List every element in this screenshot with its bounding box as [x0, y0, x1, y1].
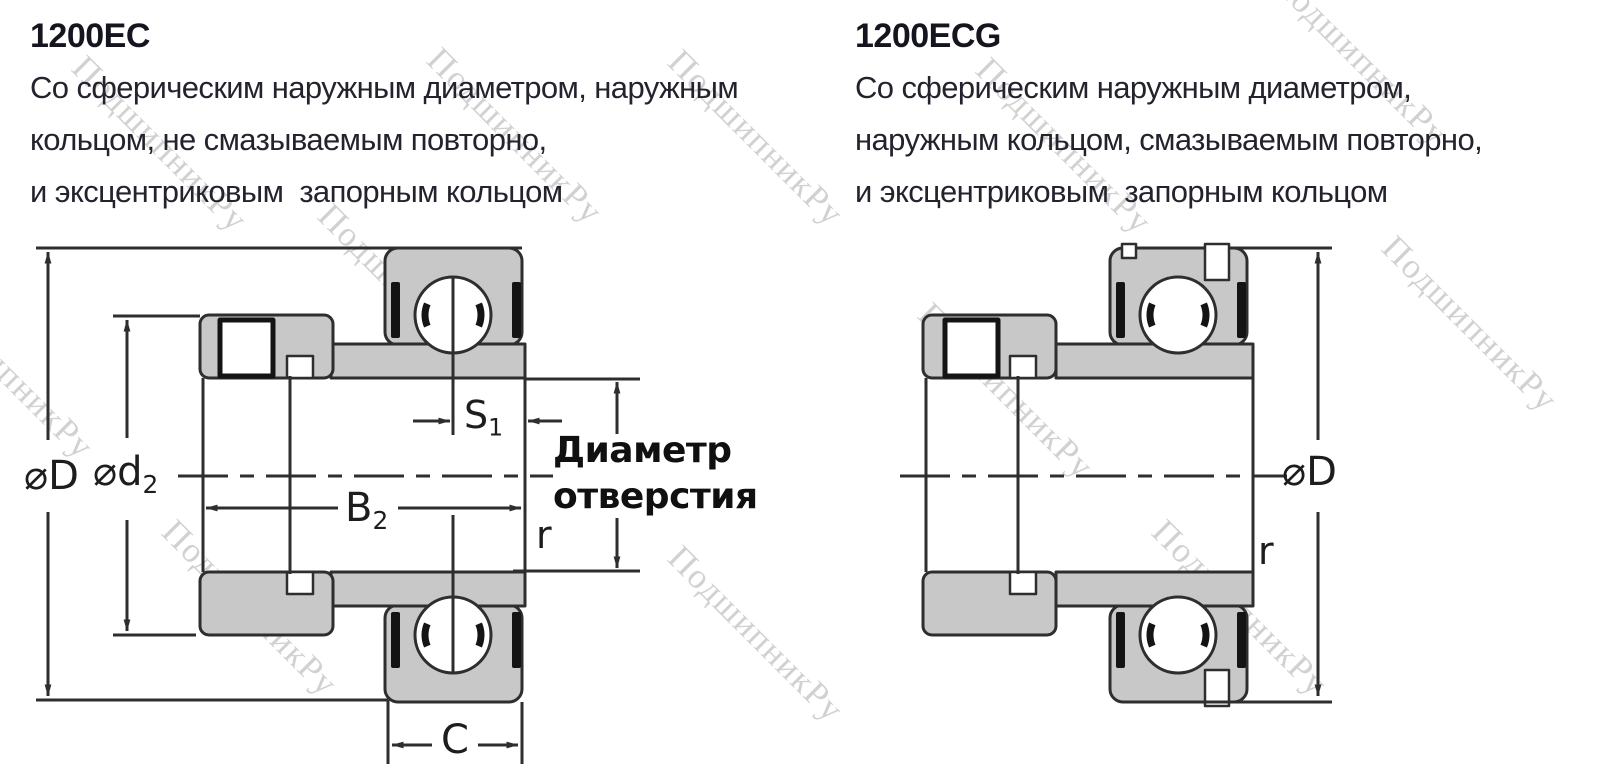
left-seal-bottom-right: [512, 612, 521, 668]
left-seal-top-left: [391, 282, 400, 338]
right-grease-slot-top: [1205, 244, 1229, 280]
right-bearing-drawing: [900, 244, 1287, 706]
right-collar-step-top: [1010, 356, 1036, 378]
right-seal-top-left: [1116, 282, 1125, 338]
right-fillet-radius-label: r: [1258, 532, 1274, 570]
right-seal-bottom-right: [1237, 612, 1246, 668]
left-outer-diameter-label: ⌀D: [24, 456, 79, 502]
bearing-drawings: [0, 0, 1604, 776]
right-inner-ring-top: [1056, 344, 1253, 378]
left-b2-label: B2: [345, 488, 388, 534]
catalog-page: ПодшипникРу ПодшипникРу ПодшипникРу Подш…: [0, 0, 1604, 776]
left-seal-bottom-left: [391, 612, 400, 668]
left-inner-ring-top: [331, 344, 525, 378]
right-collar-step-bottom: [1010, 572, 1036, 594]
left-collar-step-bottom: [287, 572, 313, 594]
right-seal-bottom-left: [1116, 612, 1125, 668]
left-dimension-lines: [36, 248, 640, 764]
right-setscrew-hole: [945, 320, 998, 376]
right-outer-diameter-label: ⌀D: [1282, 452, 1337, 498]
left-setscrew-hole: [220, 320, 273, 376]
left-bore-diameter-label: Диаметр отверстия: [553, 428, 758, 520]
left-seal-top-right: [512, 282, 521, 338]
left-ring-width-label: C: [441, 720, 469, 760]
right-inner-ring-bottom: [1056, 572, 1253, 606]
right-grease-nick-top: [1122, 244, 1136, 258]
left-inner-ring-bottom: [331, 572, 525, 606]
left-collar-diameter-label: ⌀d2: [93, 452, 158, 498]
left-bearing-drawing: [178, 248, 553, 702]
left-s1-label: S1: [464, 396, 503, 440]
left-collar-step-top: [287, 356, 313, 378]
right-seal-top-right: [1237, 282, 1246, 338]
left-fillet-radius-label: r: [536, 516, 552, 554]
